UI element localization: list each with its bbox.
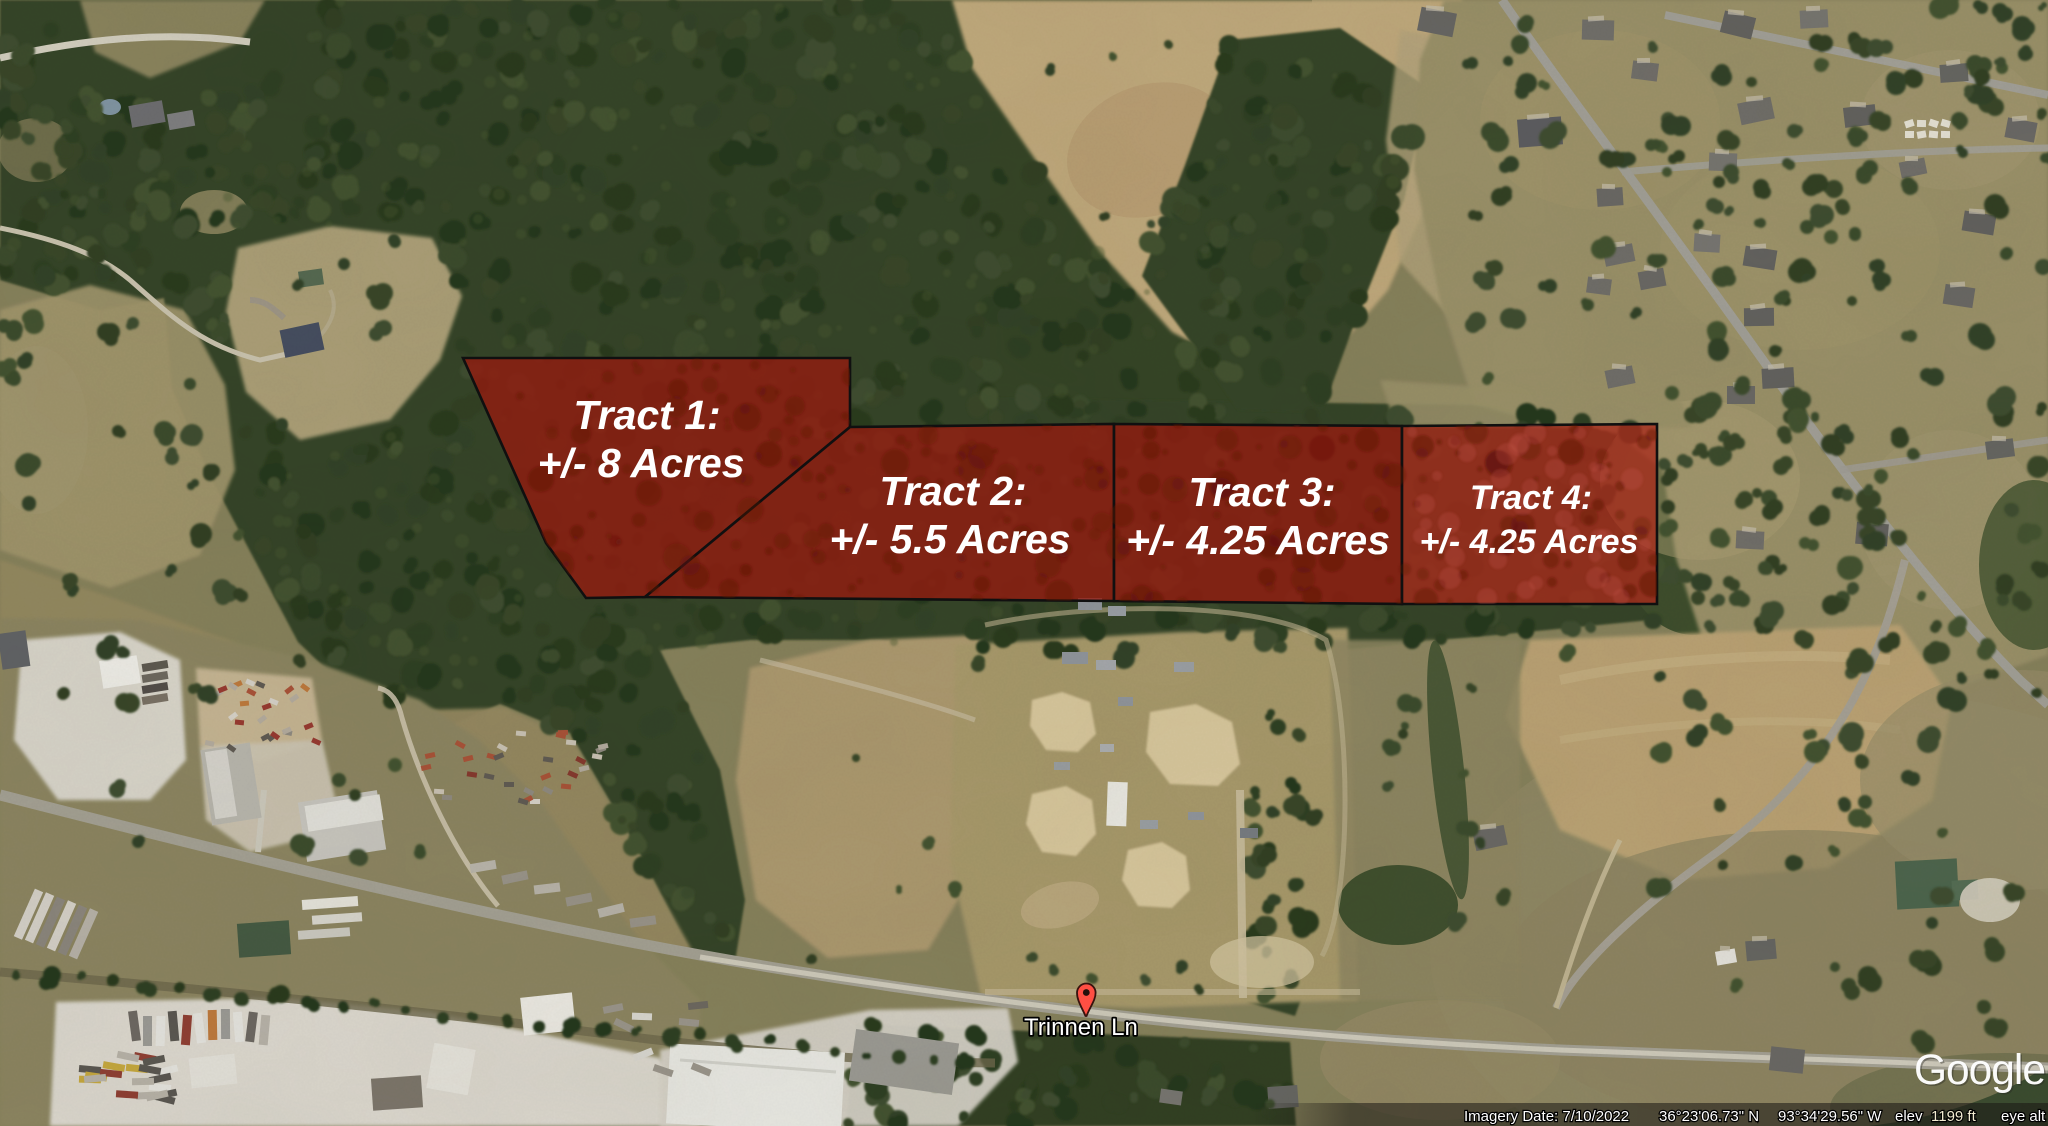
svg-text:+/- 8 Acres: +/- 8 Acres bbox=[537, 440, 744, 486]
svg-text:1199 ft: 1199 ft bbox=[1931, 1108, 1977, 1125]
svg-text:elev: elev bbox=[1895, 1108, 1923, 1125]
svg-text:Trinnen Ln: Trinnen Ln bbox=[1024, 1014, 1138, 1041]
svg-text:Tract 3:: Tract 3: bbox=[1188, 469, 1335, 515]
svg-text:Google: Google bbox=[1914, 1047, 2045, 1094]
svg-text:+/- 5.5 Acres: +/- 5.5 Acres bbox=[829, 516, 1070, 562]
svg-text:eye alt: eye alt bbox=[2001, 1108, 2046, 1125]
svg-text:Imagery Date: 7/10/2022: Imagery Date: 7/10/2022 bbox=[1464, 1108, 1629, 1125]
svg-text:Tract 2:: Tract 2: bbox=[879, 468, 1026, 514]
svg-text:Tract 4:: Tract 4: bbox=[1470, 479, 1592, 517]
svg-text:93°34'29.56" W: 93°34'29.56" W bbox=[1778, 1108, 1882, 1125]
svg-text:Tract 1:: Tract 1: bbox=[573, 392, 720, 438]
svg-text:36°23'06.73" N: 36°23'06.73" N bbox=[1659, 1108, 1759, 1125]
svg-text:+/- 4.25 Acres: +/- 4.25 Acres bbox=[1126, 517, 1390, 563]
svg-text:+/- 4.25 Acres: +/- 4.25 Acres bbox=[1420, 523, 1639, 561]
